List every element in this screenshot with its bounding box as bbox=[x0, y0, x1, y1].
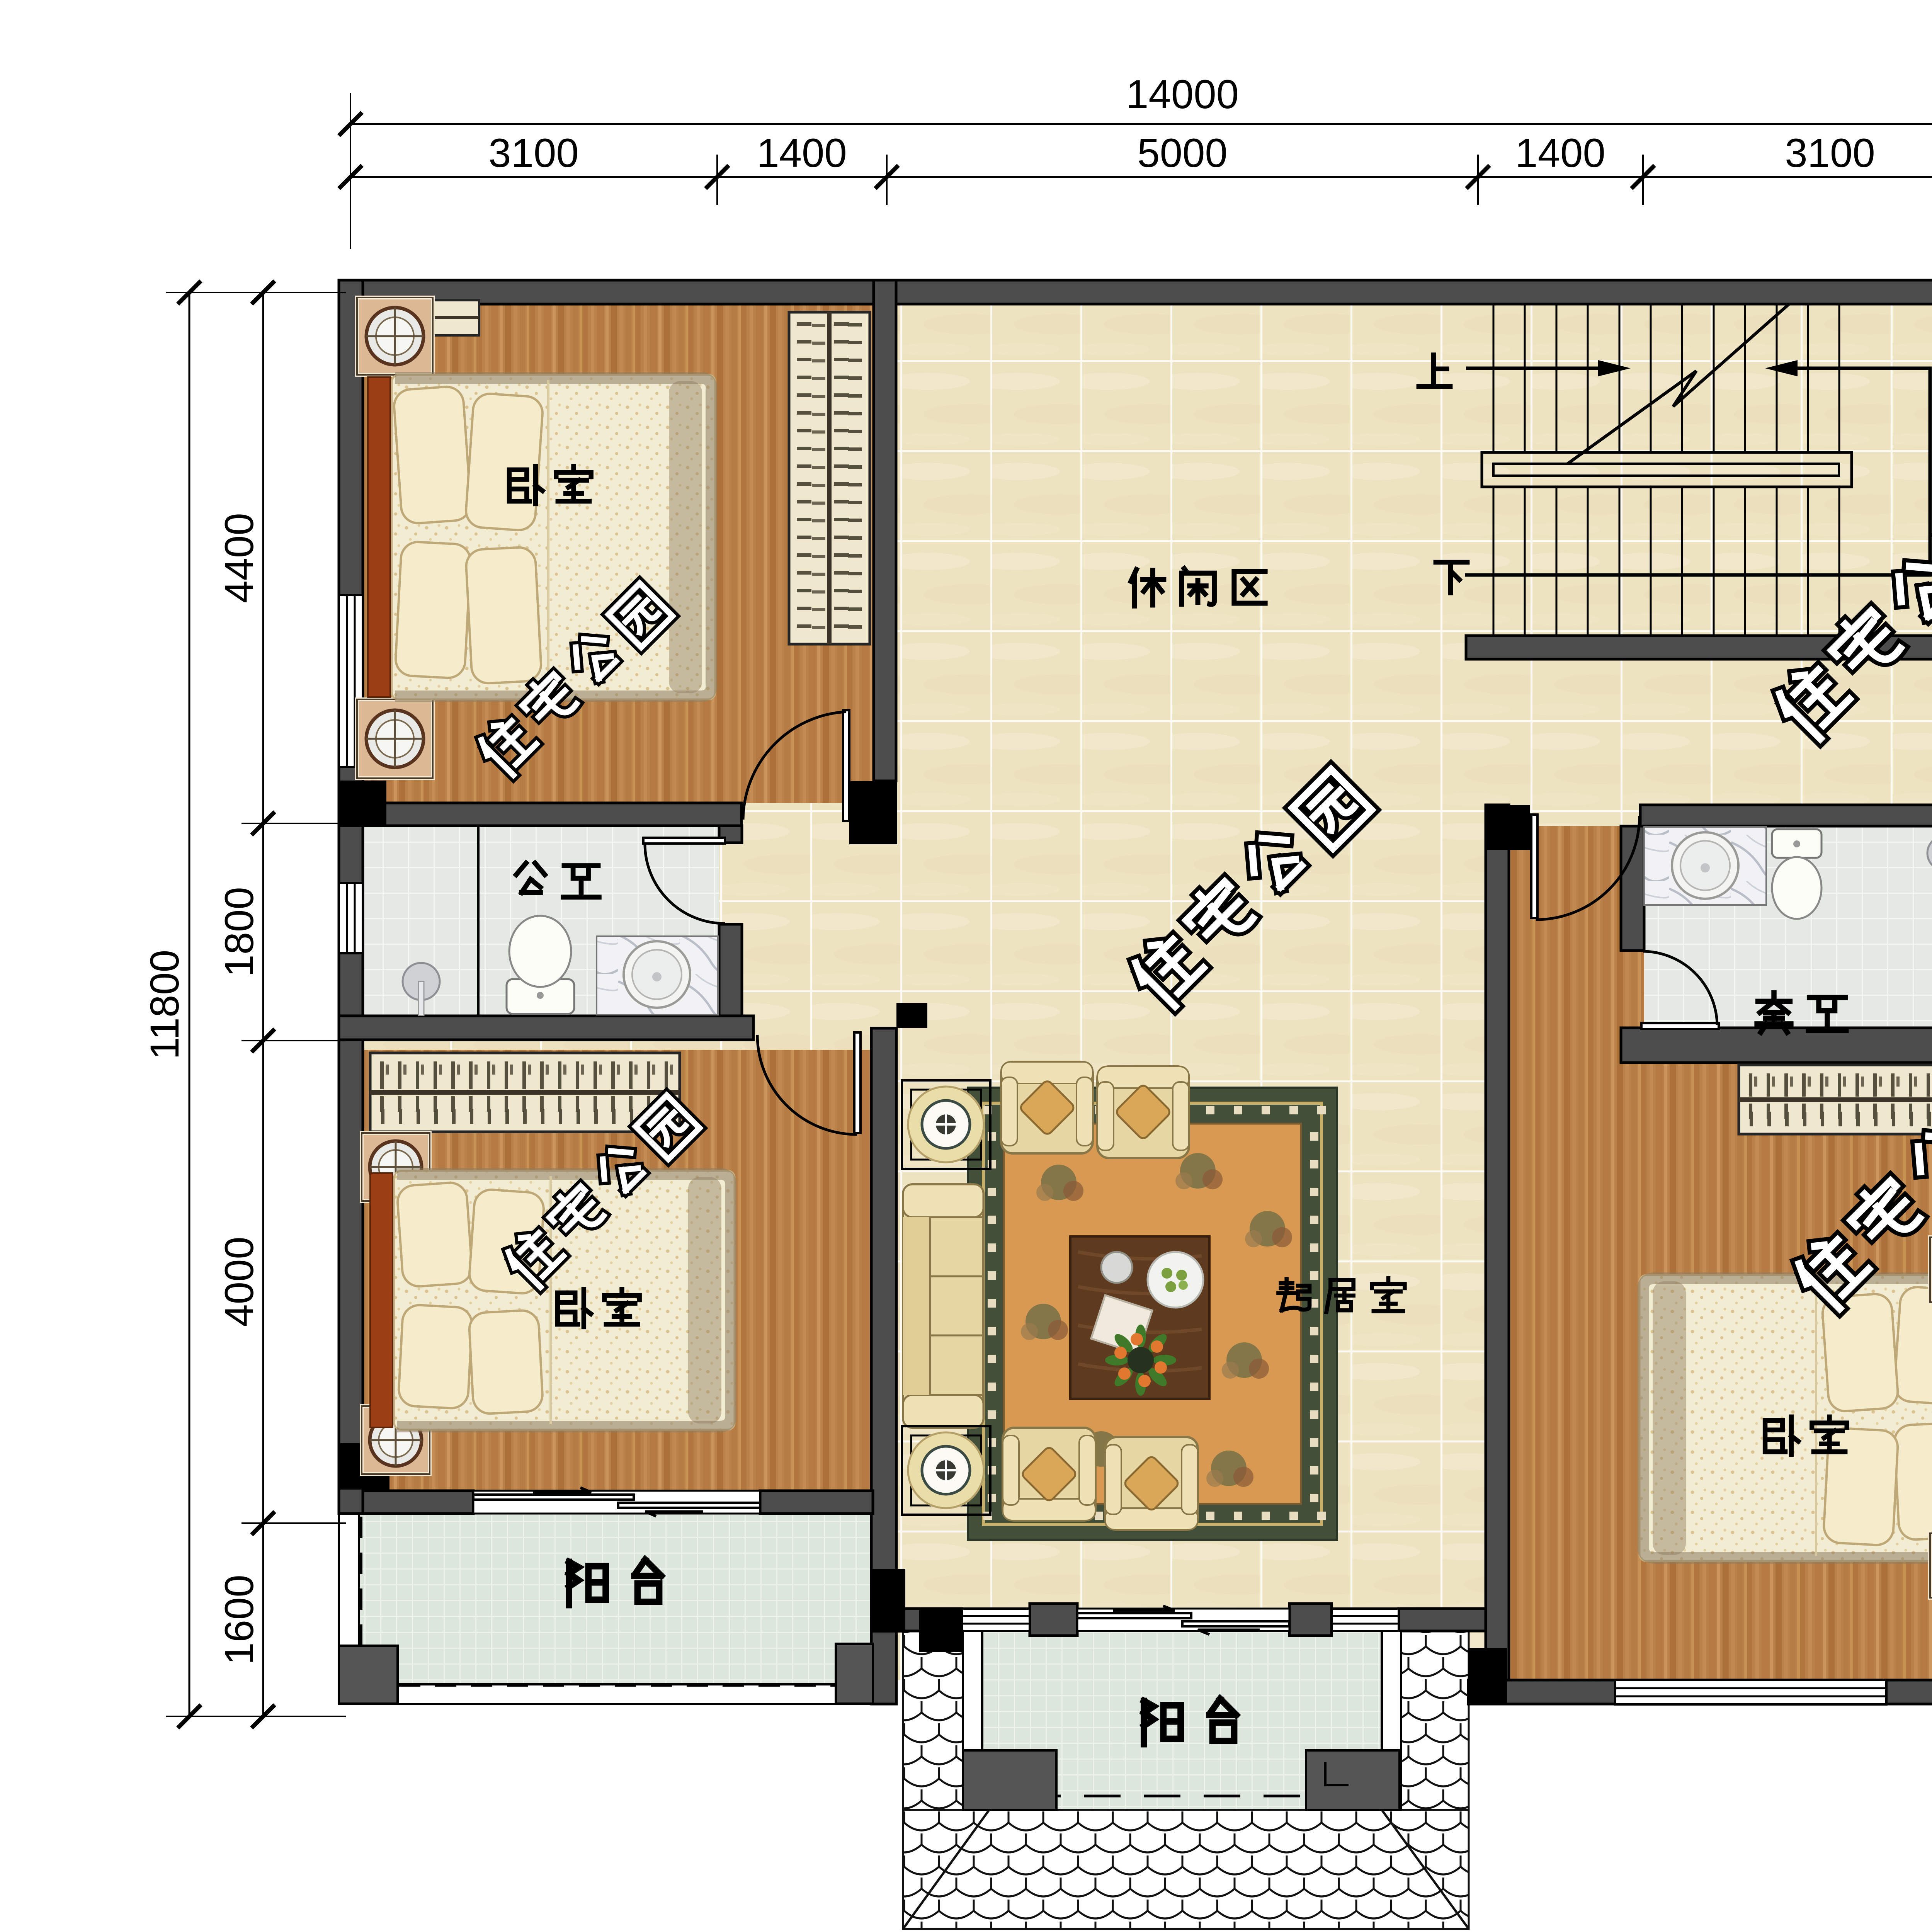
svg-text:1400: 1400 bbox=[1515, 131, 1605, 176]
svg-text:11800: 11800 bbox=[142, 950, 187, 1060]
svg-text:14000: 14000 bbox=[1126, 72, 1239, 117]
svg-text:3100: 3100 bbox=[488, 131, 579, 176]
svg-text:3100: 3100 bbox=[1785, 131, 1875, 176]
svg-text:1800: 1800 bbox=[217, 887, 262, 977]
svg-text:4400: 4400 bbox=[217, 513, 262, 603]
svg-text:4000: 4000 bbox=[217, 1236, 262, 1327]
svg-text:1600: 1600 bbox=[217, 1575, 262, 1665]
svg-text:5000: 5000 bbox=[1137, 131, 1228, 176]
svg-text:1400: 1400 bbox=[757, 131, 847, 176]
